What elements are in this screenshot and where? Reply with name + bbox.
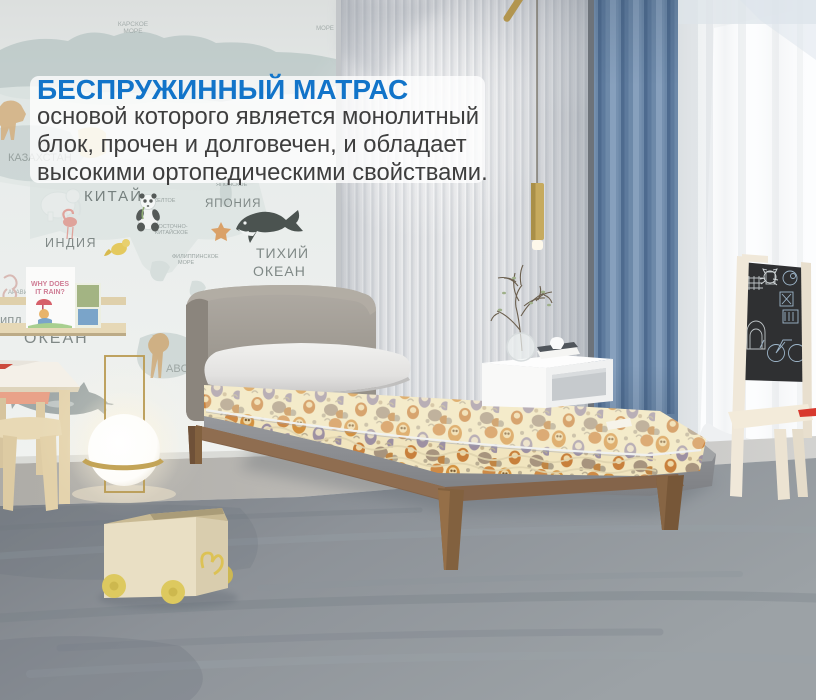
svg-text:КИТАЙ: КИТАЙ xyxy=(84,187,143,205)
svg-text:МОРЕ: МОРЕ xyxy=(316,26,334,32)
svg-text:ИНДИЯ: ИНДИЯ xyxy=(45,236,97,250)
svg-text:ТИХИЙ: ТИХИЙ xyxy=(256,244,309,261)
svg-text:МОРЕ: МОРЕ xyxy=(178,260,195,266)
svg-text:WHY DOES: WHY DOES xyxy=(31,281,69,288)
svg-text:КИТАЙСКОЕ: КИТАЙСКОЕ xyxy=(155,228,188,236)
svg-text:ЯПОНИЯ: ЯПОНИЯ xyxy=(205,198,261,210)
svg-text:МОРЕ: МОРЕ xyxy=(123,28,143,35)
svg-text:IT RAIN?: IT RAIN? xyxy=(35,289,65,296)
svg-text:ОКЕАН: ОКЕАН xyxy=(253,263,306,279)
svg-text:КАРСКОЕ: КАРСКОЕ xyxy=(118,21,149,28)
